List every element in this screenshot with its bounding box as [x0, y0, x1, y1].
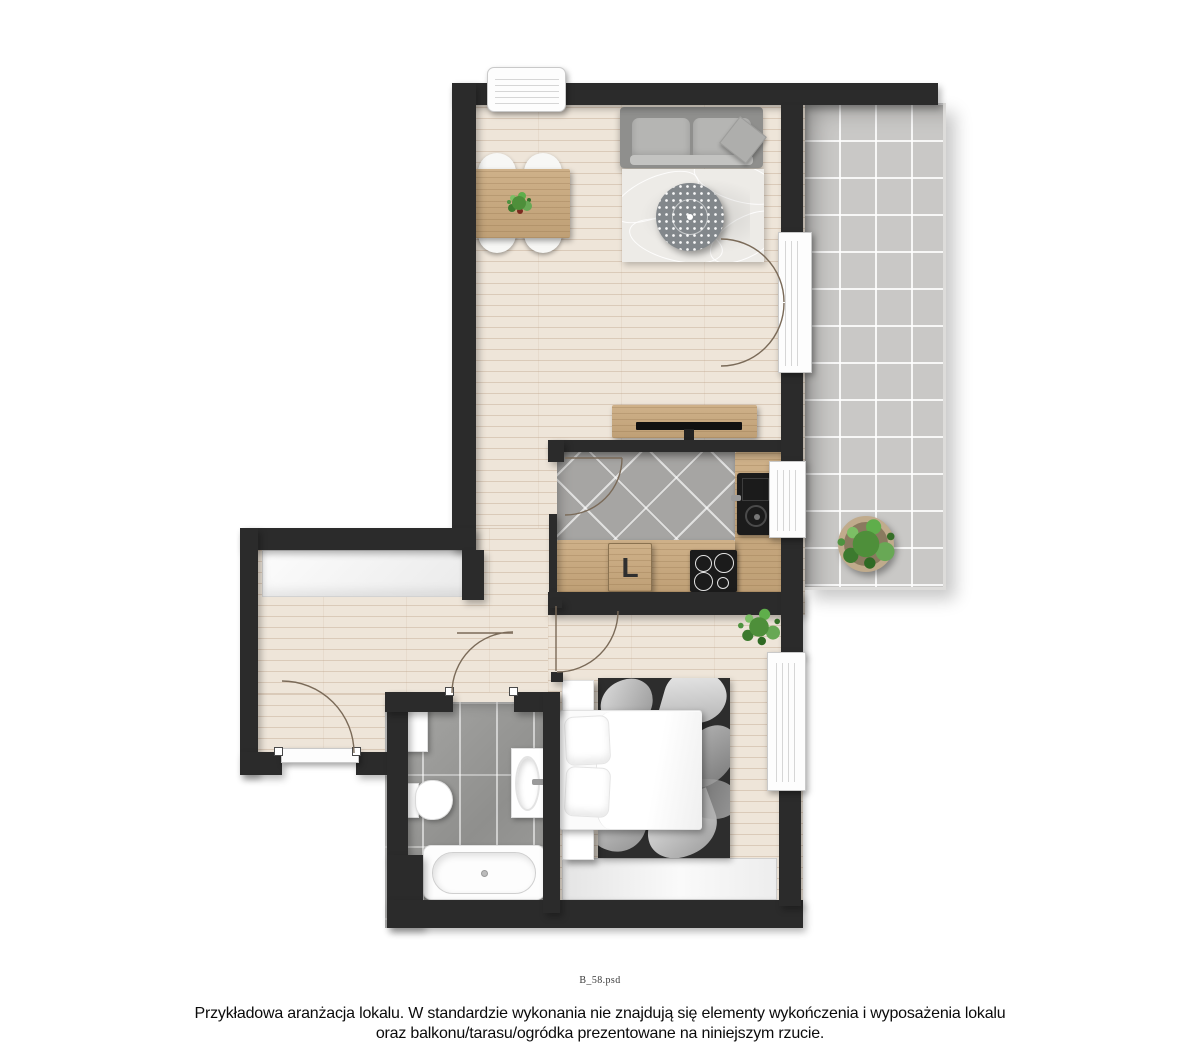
wall-bedroom-door-jamb-top — [550, 600, 562, 608]
wall-bath-bedroom — [543, 692, 560, 913]
plant-foliage — [853, 531, 880, 558]
cooktop-burner — [695, 555, 712, 572]
balcony-door-glazing — [785, 241, 800, 366]
wall-bedroom-door-jamb-bottom — [551, 672, 563, 682]
sofa — [620, 107, 763, 168]
wall-living-kitchen-divider — [548, 440, 790, 452]
sink-bowl — [745, 505, 767, 527]
bathroom-door-hinge — [445, 687, 454, 696]
pouf — [656, 183, 724, 251]
bedroom-wardrobe — [562, 858, 777, 900]
wall-right-upper — [781, 105, 803, 235]
window-glazing — [777, 470, 799, 531]
drawing-file-caption: B_58.psd — [0, 975, 1200, 986]
window-glazing — [495, 76, 559, 104]
washbasin-cabinet — [511, 748, 544, 818]
hallway-wardrobe — [262, 550, 472, 597]
entrance-door-hinge — [352, 747, 361, 756]
disclaimer-line-1: Przykładowa aranżacja lokalu. W standard… — [0, 1004, 1200, 1024]
cooktop-burner — [714, 553, 734, 573]
floor-plan-page: L — [0, 0, 1200, 1060]
bed — [559, 710, 702, 830]
balcony-plant — [838, 516, 894, 572]
wall-right-bedroom — [779, 786, 801, 906]
wall-right-mid — [781, 370, 803, 463]
sink-drainer — [742, 478, 769, 501]
wall-kitchen-door-block — [548, 440, 564, 462]
wall-bottom — [387, 900, 803, 928]
toilet-bowl — [415, 780, 453, 820]
entrance-door-sill — [281, 748, 359, 763]
hallway-floor-lower — [240, 694, 390, 754]
sink-faucet — [731, 495, 741, 501]
entrance-door-hinge — [274, 747, 283, 756]
nightstand — [562, 828, 594, 860]
kitchen-window — [769, 461, 806, 538]
wall-kitchen-left — [549, 514, 557, 592]
sofa-seat-edge — [630, 155, 753, 165]
pouf-center-dot — [687, 214, 693, 220]
cooktop-burner — [694, 572, 713, 591]
wall-kitchen-bottom — [548, 592, 803, 615]
fridge-cabinet: L — [608, 543, 652, 592]
disclaimer-line-2: oraz balkonu/tarasu/ogródka prezentowane… — [0, 1024, 1200, 1044]
cooktop-burner — [717, 577, 729, 589]
cooktop — [690, 550, 737, 592]
sink-drain — [754, 514, 760, 520]
fridge-label: L — [621, 552, 638, 584]
living-room-window — [487, 67, 566, 112]
bedroom-window — [767, 652, 806, 791]
wall-hall-top — [240, 528, 476, 550]
wall-hall-stub — [462, 550, 484, 600]
window-glazing — [776, 663, 798, 782]
wall-bath-left — [387, 692, 408, 862]
bed-pillow — [564, 766, 612, 818]
wall-bath-top-left — [385, 692, 453, 712]
bathtub-drain — [481, 870, 488, 877]
disclaimer-text: Przykładowa aranżacja lokalu. W standard… — [0, 1004, 1200, 1043]
wall-living-left — [452, 83, 476, 550]
wall-right-lower — [781, 535, 803, 657]
wall-hall-left — [240, 528, 258, 775]
plant-foliage — [749, 617, 769, 637]
kitchen-floor — [557, 450, 735, 542]
plant-foliage — [512, 196, 526, 210]
nightstand — [562, 680, 594, 712]
bathtub — [423, 845, 545, 900]
bathroom-door-hinge — [509, 687, 518, 696]
balcony-door — [778, 232, 812, 373]
sofa-cushion — [632, 118, 690, 160]
bed-pillow — [564, 715, 612, 766]
bed-duvet — [596, 712, 702, 829]
